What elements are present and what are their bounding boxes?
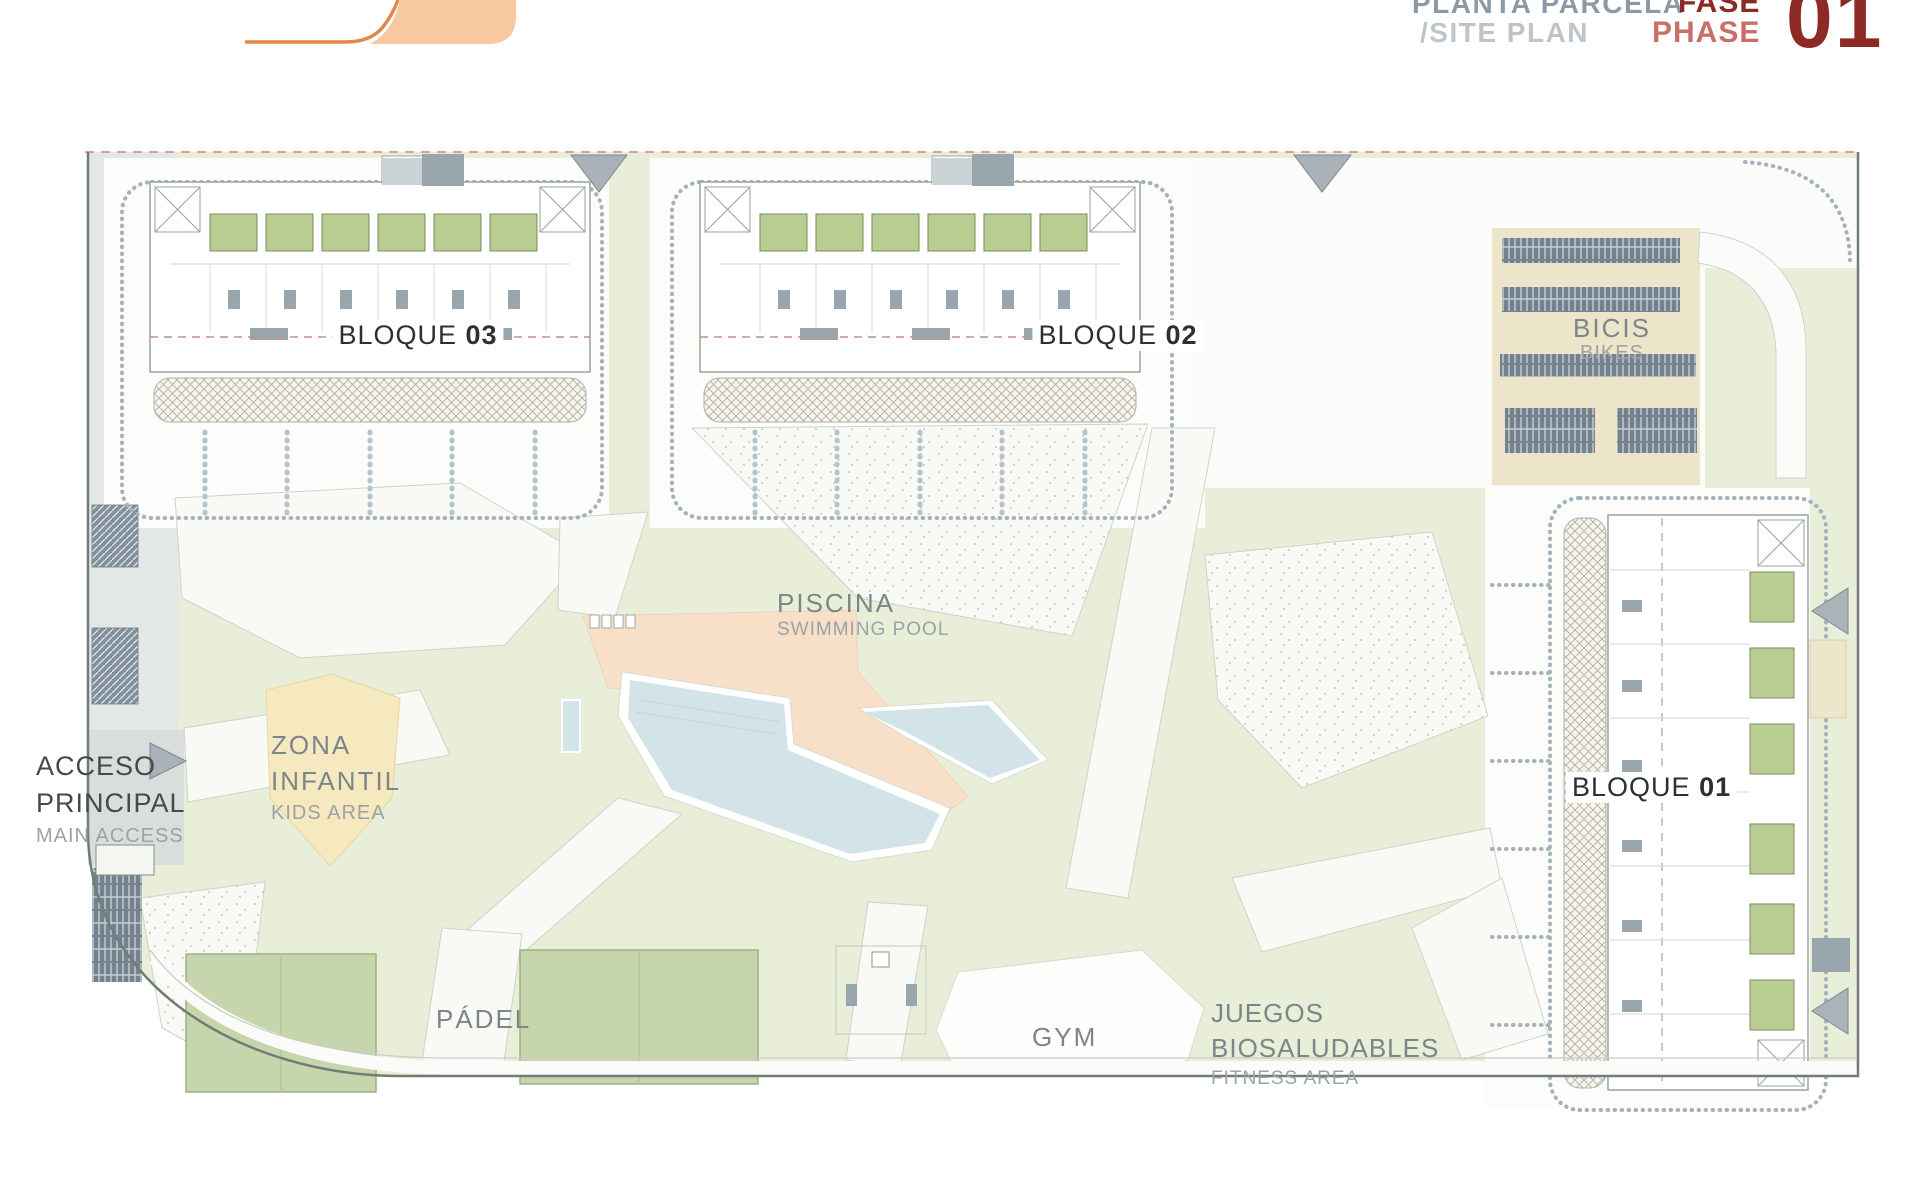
crossing-hatch [92, 628, 138, 704]
plan-title-en: /SITE PLAN [1420, 17, 1589, 49]
label-kids-area: ZONA INFANTIL KIDS AREA [271, 727, 401, 825]
label-main-access: ACCESO PRINCIPAL MAIN ACCESS [36, 748, 186, 848]
bloque-02-number: 02 [1166, 320, 1198, 350]
bloque-01-word: BLOQUE [1572, 772, 1691, 802]
access-es-2: PRINCIPAL [36, 785, 186, 822]
crossing-hatch [92, 505, 138, 567]
label-bikes: BICIS BIKES [1573, 310, 1651, 365]
label-gym: GYM [1032, 1019, 1097, 1055]
fitness-en: FITNESS AREA [1211, 1068, 1439, 1090]
bloque-01-number: 01 [1699, 772, 1731, 802]
bikes-en: BIKES [1573, 342, 1651, 365]
bloque-02-word: BLOQUE [1038, 320, 1157, 350]
pool-es: PISCINA [777, 589, 949, 617]
brand-logo [0, 0, 560, 60]
phase-label-en: PHASE [1652, 16, 1760, 50]
label-pool: PISCINA SWIMMING POOL [777, 589, 949, 641]
pool-en: SWIMMING POOL [777, 619, 949, 641]
label-bloque-02: BLOQUE 02 [1032, 320, 1203, 351]
site-plan-drawing [0, 0, 1920, 1200]
label-bloque-03: BLOQUE 03 [332, 320, 503, 351]
label-padel: PÁDEL [436, 1001, 531, 1037]
fitness-es-1: JUEGOS [1211, 996, 1439, 1031]
bike-rack [1502, 287, 1680, 312]
bike-rack [1502, 238, 1680, 263]
kids-en: KIDS AREA [271, 802, 401, 825]
label-fitness-area: JUEGOS BIOSALUDABLES FITNESS AREA [1211, 996, 1439, 1090]
bike-rack [1505, 408, 1595, 453]
access-es-1: ACCESO [36, 748, 186, 785]
access-en: MAIN ACCESS [36, 825, 186, 848]
fitness-es-2: BIOSALUDABLES [1211, 1031, 1439, 1066]
bike-rack [1617, 408, 1697, 453]
plunge-pool [562, 700, 580, 752]
bikes-es: BICIS [1573, 310, 1651, 346]
kids-es-1: ZONA [271, 727, 401, 763]
kids-es-2: INFANTIL [271, 763, 401, 799]
site-plan-page: PLANTA PARCELA /SITE PLAN FASE PHASE 01 … [0, 0, 1920, 1200]
phase-number: 01 [1786, 0, 1883, 60]
label-bloque-01: BLOQUE 01 [1566, 772, 1737, 803]
bloque-03-word: BLOQUE [338, 320, 457, 350]
bloque-03-number: 03 [466, 320, 498, 350]
gate-hut [96, 845, 154, 875]
